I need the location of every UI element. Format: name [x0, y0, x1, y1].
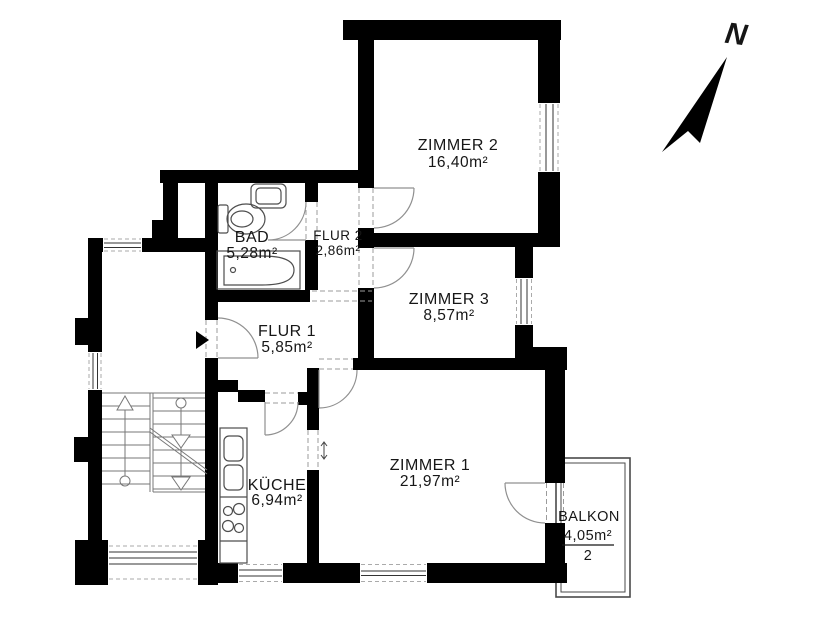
flur2-area: 2,86m²: [315, 243, 360, 258]
window-opening: [360, 563, 427, 583]
floor-plan-page: N ZIMMER 2 16,40m² BAD 5,28m² FLUR 2 2,8…: [0, 0, 827, 620]
north-arrow-needle: [662, 57, 727, 152]
north-label: N: [723, 17, 750, 53]
door-swing-zimmer3: [374, 248, 414, 288]
wall-segment: [238, 390, 265, 402]
wall-segment: [205, 183, 218, 563]
wall-segment: [152, 220, 178, 238]
bad-area: 5,28m²: [226, 245, 277, 262]
flur1-label: FLUR 1: [258, 323, 316, 340]
window-opening: [515, 278, 533, 325]
wall-segment: [353, 358, 567, 370]
wall-segment: [213, 380, 238, 392]
wall-segment: [160, 170, 372, 183]
wall-segment: [538, 172, 560, 233]
walls: [74, 20, 567, 585]
stair-divider: [150, 393, 153, 492]
wall-segment: [208, 290, 310, 302]
balkon-label: BALKON: [558, 509, 620, 525]
opening-height-marker: [321, 442, 327, 459]
wall-segment: [515, 325, 533, 347]
zimmer2-label: ZIMMER 2: [418, 137, 498, 154]
flur2-label: FLUR 2: [313, 228, 363, 243]
wall-segment: [163, 183, 178, 223]
wall-segment: [358, 233, 560, 247]
window-opening: [88, 352, 102, 390]
flur1-area: 5,85m²: [261, 339, 312, 356]
wall-segment: [343, 20, 561, 40]
kitchen-fixtures: [220, 428, 247, 563]
stair-direction-up: [117, 396, 133, 486]
zimmer3-label: ZIMMER 3: [409, 291, 489, 308]
floor-plan-svg: N ZIMMER 2 16,40m² BAD 5,28m² FLUR 2 2,8…: [0, 0, 827, 620]
wall-segment: [88, 238, 102, 585]
stove-burners: [223, 504, 245, 533]
zimmer2-area: 16,40m²: [428, 154, 488, 171]
balkon-area-denominator: 2: [584, 548, 593, 564]
window-opening: [103, 238, 142, 252]
sink: [251, 184, 286, 208]
jamb-zimmer1-door: [319, 359, 353, 369]
wall-segment: [538, 40, 560, 103]
zimmer3-area: 8,57m²: [423, 307, 474, 324]
jamb-kueche-door: [265, 393, 298, 403]
door-swing-zimmer1: [319, 370, 357, 408]
window-opening: [538, 103, 560, 172]
kueche-area: 6,94m²: [251, 492, 302, 509]
window-opening: [108, 540, 198, 585]
north-arrow: N: [662, 17, 750, 152]
kitchen-sink: [224, 436, 243, 490]
counter-dividers: [220, 497, 247, 541]
door-swing-kueche: [265, 402, 298, 435]
staircase: [102, 393, 207, 492]
stair-steps-left: [102, 406, 150, 484]
door-opening: [305, 430, 321, 470]
door-swing-entrance: [218, 318, 258, 358]
door-swing-zimmer2: [374, 188, 414, 228]
door-swing-balcony: [505, 483, 545, 523]
wall-segment: [545, 363, 565, 483]
wall-pilaster: [75, 318, 88, 345]
zimmer1-area: 21,97m²: [400, 473, 460, 490]
zimmer1-label: ZIMMER 1: [390, 457, 470, 474]
balkon-label-group: BALKON 4,05m² 2: [558, 509, 620, 564]
balkon-area-numerator: 4,05m²: [564, 528, 612, 544]
wall-pilaster: [74, 437, 88, 462]
window-opening: [238, 563, 283, 583]
wall-segment: [515, 247, 533, 278]
bad-label: BAD: [235, 229, 269, 246]
